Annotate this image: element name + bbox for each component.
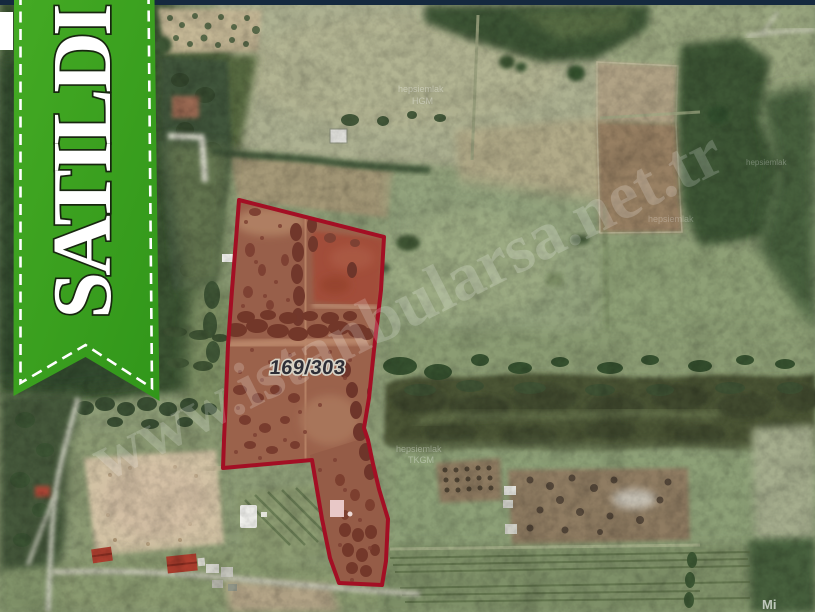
- svg-text:TKGM: TKGM: [408, 455, 434, 465]
- svg-text:hepsiemlak: hepsiemlak: [746, 158, 787, 167]
- svg-text:hepsiemlak: hepsiemlak: [396, 444, 442, 454]
- svg-text:SATILDI: SATILDI: [36, 6, 129, 319]
- svg-text:169/303: 169/303: [268, 357, 346, 379]
- svg-text:hepsiemlak: hepsiemlak: [648, 214, 694, 224]
- svg-text:Mi: Mi: [762, 597, 776, 612]
- svg-text:HGM: HGM: [412, 96, 433, 106]
- svg-text:hepsiemlak: hepsiemlak: [398, 84, 444, 94]
